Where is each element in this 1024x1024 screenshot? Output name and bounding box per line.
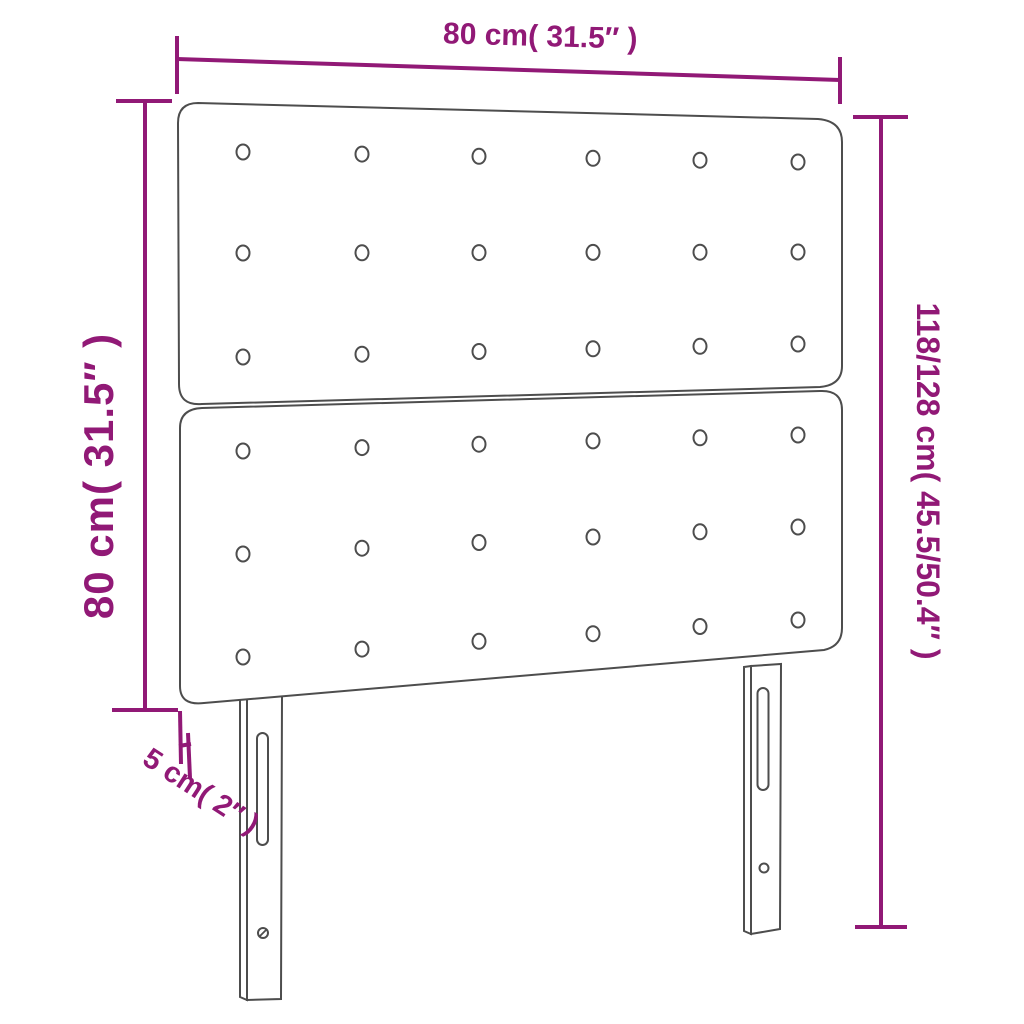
tufting-button: [587, 433, 600, 448]
left-leg: [240, 696, 282, 1000]
tufting-button: [792, 337, 805, 352]
headboard-upper-panel: [178, 103, 842, 404]
thickness-dim-line: [179, 744, 191, 746]
tufting-button: [237, 145, 250, 160]
tufting-button: [694, 430, 707, 445]
tufting-button: [587, 530, 600, 545]
tufting-button: [792, 428, 805, 443]
right-leg-slot: [758, 688, 769, 790]
panel-height-dimension: 80 cm( 31.5″ ): [75, 101, 178, 710]
tufting-button: [473, 535, 486, 550]
tufting-button: [356, 147, 369, 162]
headboard: [178, 103, 842, 1000]
tufting-button: [473, 149, 486, 164]
tufting-button: [356, 642, 369, 657]
dimension-diagram: 80 cm( 31.5″ ) 80 cm( 31.5″ ) 118/128 cm…: [0, 0, 1024, 1024]
left-leg-slot: [257, 733, 268, 845]
tufting-button: [792, 155, 805, 170]
tufting-button: [356, 440, 369, 455]
tufting-button: [473, 245, 486, 260]
tufting-button: [587, 245, 600, 260]
tufting-button: [237, 246, 250, 261]
tufting-button: [792, 245, 805, 260]
total-height-dimension: 118/128 cm( 45.5/50.4″ ): [853, 117, 946, 927]
tufting-button: [237, 350, 250, 365]
tufting-button: [587, 626, 600, 641]
tufting-button: [694, 524, 707, 539]
width-dimension: 80 cm( 31.5″ ): [177, 17, 840, 104]
tufting-button: [356, 245, 369, 260]
total-height-dimension-label: 118/128 cm( 45.5/50.4″ ): [910, 303, 946, 660]
tufting-button: [473, 437, 486, 452]
tufting-button: [473, 634, 486, 649]
right-leg: [744, 664, 781, 934]
right-leg-side-face: [744, 666, 751, 934]
tufting-button: [237, 650, 250, 665]
tufting-button: [587, 341, 600, 356]
tufting-button: [473, 344, 486, 359]
headboard-lower-panel: [180, 391, 842, 703]
tufting-button: [792, 520, 805, 535]
tufting-button: [694, 619, 707, 634]
tufting-button: [694, 339, 707, 354]
width-dimension-label: 80 cm( 31.5″ ): [443, 17, 638, 55]
panel-height-dimension-label: 80 cm( 31.5″ ): [75, 333, 122, 619]
tufting-button: [694, 245, 707, 260]
tufting-button: [237, 444, 250, 459]
width-dim-line: [177, 59, 840, 80]
thickness-tick-a: [180, 711, 181, 764]
headboard-diagram-svg: 80 cm( 31.5″ ) 80 cm( 31.5″ ) 118/128 cm…: [0, 0, 1024, 1024]
left-leg-side-face: [240, 698, 247, 1000]
right-leg-screw-hole: [760, 864, 769, 873]
tufting-button: [694, 153, 707, 168]
tufting-button: [237, 547, 250, 562]
tufting-button: [356, 541, 369, 556]
tufting-button: [356, 347, 369, 362]
tufting-button: [587, 151, 600, 166]
tufting-button: [792, 613, 805, 628]
